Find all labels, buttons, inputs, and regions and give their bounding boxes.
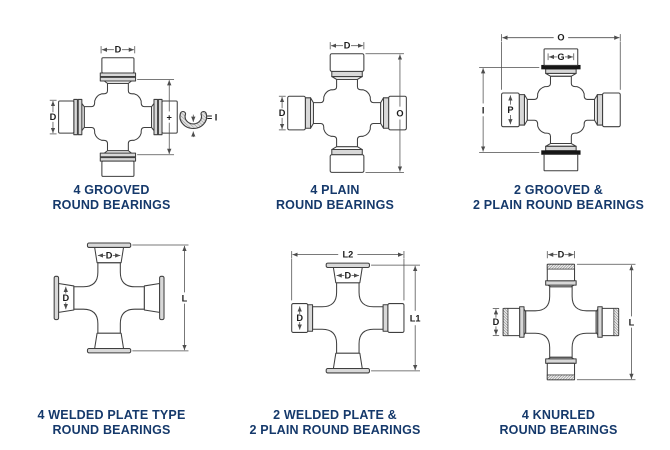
dim-label-i: I — [482, 105, 485, 115]
figure-4-grooved: D D + = I — [0, 0, 223, 178]
caption-line1: 2 WELDED PLATE & — [249, 408, 420, 423]
dim-label-p: P — [507, 105, 513, 115]
dim-label-d: D — [558, 250, 565, 260]
dim-label-d: D — [279, 108, 286, 118]
dimension-top-d: D — [330, 41, 364, 51]
dimension-top-d: D — [547, 250, 574, 260]
caption-4-plain: 4 PLAIN ROUND BEARINGS — [276, 183, 394, 213]
dim-label-d: D — [493, 317, 500, 327]
caption-2-grooved-2-plain: 2 GROOVED & 2 PLAIN ROUND BEARINGS — [473, 183, 644, 213]
dimension-left-d: D — [493, 308, 500, 335]
caption-4-welded-plate: 4 WELDED PLATE TYPE ROUND BEARINGS — [37, 408, 185, 438]
diagram-cell-4-welded-plate: D D L 4 WELDED PLATE TYPE ROUND BEARINGS — [0, 225, 223, 450]
dim-label-g: G — [557, 52, 564, 62]
caption-line2: ROUND BEARINGS — [37, 423, 185, 438]
figure-4-welded-plate: D D L — [0, 225, 223, 403]
dim-label-d: D — [344, 41, 351, 51]
dim-label-d: D — [296, 313, 303, 323]
caption-4-knurled: 4 KNURLED ROUND BEARINGS — [499, 408, 617, 438]
caption-line2: 2 PLAIN ROUND BEARINGS — [249, 423, 420, 438]
caption-line2: ROUND BEARINGS — [52, 198, 170, 213]
caption-line2: ROUND BEARINGS — [499, 423, 617, 438]
diagram-cell-2-welded-2-plain: L2 D D L1 2 WELDED PLATE & 2 PLAI — [223, 225, 447, 450]
dimension-left-d: D — [279, 96, 286, 130]
figure-4-plain: D D O — [223, 0, 447, 178]
diagram-cell-2-grooved-2-plain: O G I P 2 GROOVED & — [447, 0, 670, 225]
caption-line1: 4 PLAIN — [276, 183, 394, 198]
caption-line1: 2 GROOVED & — [473, 183, 644, 198]
ujoint-bearing-types-sheet: D D + = I — [0, 0, 670, 450]
dim-label-l: L — [182, 293, 188, 303]
dimension-left-d: D — [50, 100, 57, 134]
dim-label-l2: L2 — [342, 250, 353, 260]
dim-label-equals-i: = I — [207, 112, 218, 122]
figure-4-knurled: D D L — [447, 225, 670, 403]
caption-line1: 4 GROOVED — [52, 183, 170, 198]
dim-label-d: D — [344, 271, 351, 281]
dim-label-l: L — [629, 317, 635, 327]
dim-label-o: O — [557, 33, 564, 43]
caption-4-grooved: 4 GROOVED ROUND BEARINGS — [52, 183, 170, 213]
figure-2-grooved-2-plain: O G I P — [447, 0, 670, 178]
dim-label-l1: L1 — [410, 313, 421, 323]
dim-label-d: D — [62, 293, 69, 303]
dim-label-d: D — [50, 112, 57, 122]
caption-line2: 2 PLAIN ROUND BEARINGS — [473, 198, 644, 213]
dim-label-d: D — [115, 45, 122, 55]
diagram-cell-4-grooved: D D + = I — [0, 0, 223, 225]
diagram-cell-4-plain: D D O 4 PLAIN ROUND BEARINGS — [223, 0, 447, 225]
figure-2-welded-2-plain: L2 D D L1 — [223, 225, 447, 403]
dim-label-d: D — [106, 250, 113, 260]
diagram-cell-4-knurled: D D L 4 KNURLED ROUND BEARINGS — [447, 225, 670, 450]
caption-2-welded-2-plain: 2 WELDED PLATE & 2 PLAIN ROUND BEARINGS — [249, 408, 420, 438]
dim-label-plus: + — [167, 112, 173, 122]
caption-line1: 4 WELDED PLATE TYPE — [37, 408, 185, 423]
dim-label-o: O — [396, 108, 403, 118]
dimension-top-d: D — [101, 45, 135, 55]
caption-line1: 4 KNURLED — [499, 408, 617, 423]
caption-line2: ROUND BEARINGS — [276, 198, 394, 213]
